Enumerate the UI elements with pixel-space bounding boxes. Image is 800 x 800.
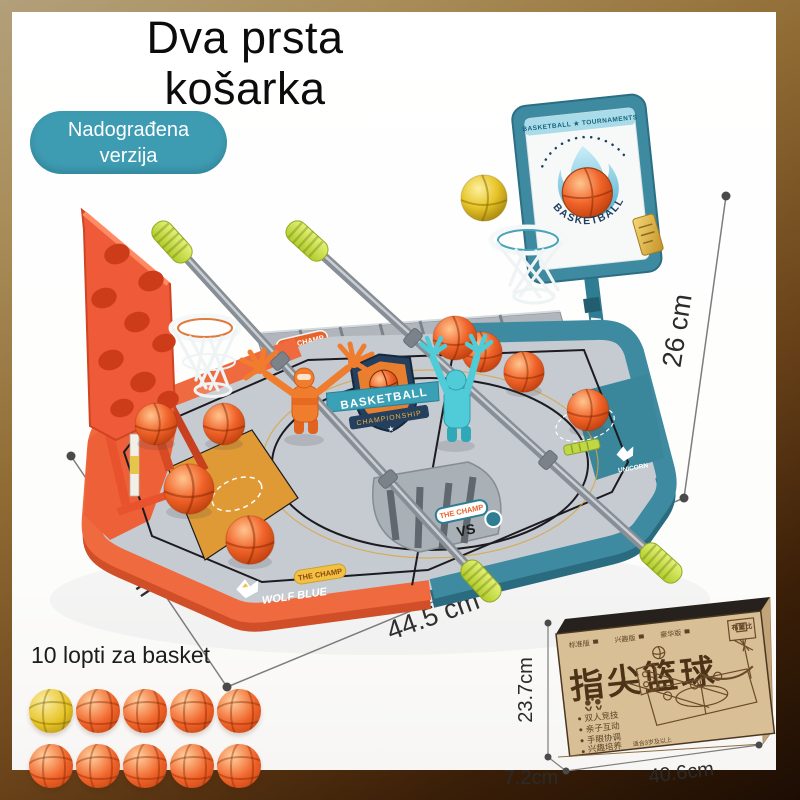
- game-table: BASKETBALL ★ TOURNAMENTS BASKETBALL: [50, 93, 710, 655]
- balls-grid: [29, 689, 267, 788]
- basket-ball: [76, 744, 120, 788]
- basket-ball: [123, 744, 167, 788]
- basket-ball: [217, 689, 261, 733]
- upgrade-badge-line2: verzija: [100, 143, 158, 169]
- right-backboard: BASKETBALL ★ TOURNAMENTS BASKETBALL: [461, 93, 666, 350]
- dimension-height-label: 26 cm: [657, 292, 698, 369]
- basket-ball: [170, 744, 214, 788]
- dimension-line-height: [684, 196, 726, 498]
- box-width-label: 40.6cm: [647, 758, 715, 788]
- product-title-line2: košarka: [103, 63, 387, 114]
- basket-ball: [29, 744, 73, 788]
- basket-ball: [76, 689, 120, 733]
- product-title: Dva prsta košarka: [103, 12, 387, 115]
- upgrade-badge: Nadograđena verzija: [30, 111, 227, 174]
- basket-ball: [217, 744, 261, 788]
- rod-handle: [282, 217, 332, 266]
- balls-caption: 10 lopti za basket: [31, 642, 210, 669]
- product-title-line1: Dva prsta: [103, 12, 387, 63]
- basket-ball: [170, 689, 214, 733]
- yellow-ball: [461, 175, 507, 221]
- star-icon: ★: [387, 424, 395, 434]
- box-height-label: 23.7cm: [515, 657, 537, 723]
- rod-handle: [148, 217, 197, 267]
- box-depth-label: 7.2cm: [504, 767, 558, 789]
- upgrade-badge-line1: Nadograđena: [68, 117, 189, 143]
- basket-ball-yellow: [29, 689, 73, 733]
- basket-ball: [123, 689, 167, 733]
